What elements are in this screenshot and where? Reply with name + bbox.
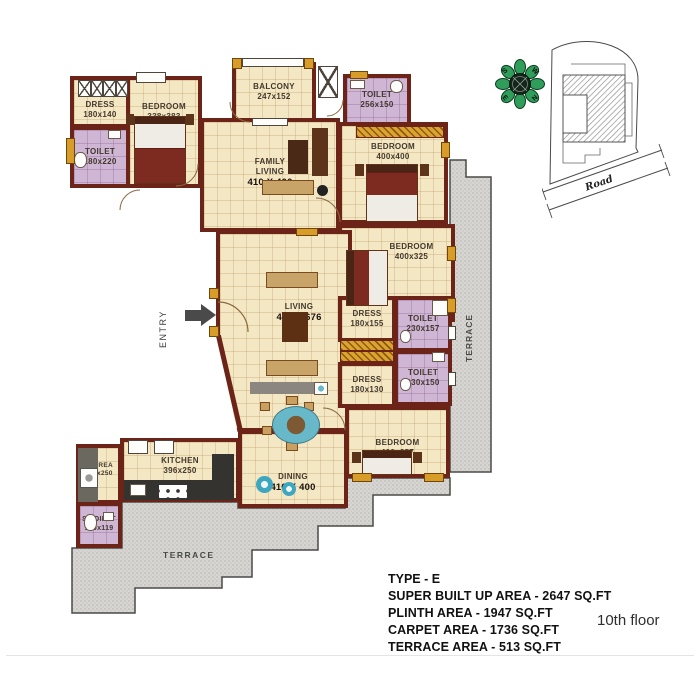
window-toilet-b-east bbox=[448, 326, 456, 340]
media-console bbox=[250, 382, 314, 394]
room-dress-c: DRESS 180x130 bbox=[338, 362, 396, 408]
site-map: Road bbox=[542, 36, 698, 236]
type-label: TYPE - E bbox=[388, 572, 611, 586]
entry-arrow-shaft bbox=[185, 310, 201, 321]
side-table bbox=[186, 114, 194, 125]
room-dims: 180x140 bbox=[83, 110, 116, 120]
sofa-living-2 bbox=[266, 360, 318, 376]
wc bbox=[390, 80, 403, 93]
window-kitchen-top-2 bbox=[154, 440, 174, 454]
sofa-living-1 bbox=[266, 272, 318, 288]
road-tick bbox=[542, 186, 546, 200]
dining-chair bbox=[260, 402, 270, 411]
wardrobe-bedroom-b bbox=[356, 126, 444, 138]
bed-bedroom-c bbox=[346, 250, 388, 306]
room-name: DRESS bbox=[83, 100, 116, 110]
room-name: DRESS bbox=[350, 375, 383, 385]
room-name: BEDROOM bbox=[142, 102, 186, 112]
window-bedroom-a-top bbox=[136, 72, 166, 83]
wardrobe-dress-2 bbox=[340, 351, 394, 362]
room-name: DINING bbox=[270, 472, 315, 482]
room-dims: 180x220 bbox=[83, 157, 116, 167]
info-line-carpet: CARPET AREA - 1736 SQ.FT bbox=[388, 623, 611, 637]
info-line-plinth: PLINTH AREA - 1947 SQ.FT bbox=[388, 606, 611, 620]
wardrobe-dress-1 bbox=[340, 340, 394, 351]
window-family-living-top bbox=[252, 118, 288, 126]
wc bbox=[400, 378, 411, 391]
threshold-entry-bottom bbox=[209, 326, 219, 337]
dining-chair bbox=[286, 396, 298, 405]
planter bbox=[317, 185, 328, 196]
bed-bedroom-b bbox=[366, 164, 418, 222]
cabinet bbox=[312, 128, 328, 176]
window-toilet-top bbox=[350, 71, 368, 79]
room-name: BEDROOM bbox=[371, 142, 415, 152]
side-table bbox=[355, 164, 364, 176]
floor-note: 10th floor bbox=[597, 612, 660, 629]
room-name: DRESS bbox=[350, 309, 383, 319]
side-table bbox=[420, 164, 429, 176]
floorplan-canvas: DRESS 180x140 TOILET 180x220 BEDROOM 338… bbox=[0, 0, 700, 681]
room-s-toilet: S.TOILET 150x119 bbox=[76, 502, 122, 548]
wc bbox=[74, 152, 87, 168]
room-name: BEDROOM bbox=[376, 438, 420, 448]
room-dims: 400x400 bbox=[371, 152, 415, 162]
dining-chair bbox=[262, 426, 272, 435]
basin bbox=[108, 130, 121, 139]
room-name: BALCONY bbox=[253, 82, 295, 92]
window-bedroom-c-east-2 bbox=[447, 298, 456, 313]
window-toilet-c-east bbox=[448, 372, 456, 386]
basin bbox=[103, 512, 114, 521]
basin bbox=[350, 80, 365, 89]
room-dims: 256x150 bbox=[360, 100, 393, 110]
terrace-bottom-label: TERRACE bbox=[163, 550, 215, 560]
window-block-a-left bbox=[66, 138, 75, 164]
room-dims: 400x325 bbox=[390, 252, 434, 262]
info-block: TYPE - E SUPER BUILT UP AREA - 2647 SQ.F… bbox=[388, 572, 611, 657]
room-dims: 180x155 bbox=[350, 319, 383, 329]
wardrobe-x-hatch bbox=[78, 80, 128, 97]
basin bbox=[432, 352, 445, 362]
fridge bbox=[212, 454, 234, 480]
room-name: TOILET bbox=[406, 368, 439, 378]
tv-unit bbox=[288, 140, 308, 174]
balcony-post-right bbox=[304, 58, 314, 69]
side-table bbox=[413, 452, 422, 463]
road-label: Road bbox=[583, 174, 614, 194]
room-dims: 230x157 bbox=[406, 324, 439, 334]
dining-table bbox=[272, 406, 320, 444]
center-rug bbox=[282, 312, 308, 342]
room-dims: 396x250 bbox=[161, 466, 199, 476]
room-name: KITCHEN bbox=[161, 456, 199, 466]
window-bedroom-d-south-2 bbox=[424, 473, 444, 482]
compass-rose: S W N E bbox=[492, 56, 548, 112]
side-table bbox=[126, 114, 134, 125]
window-bedroom-d-south-1 bbox=[352, 473, 372, 482]
washing-machine bbox=[80, 468, 98, 488]
road-tick bbox=[547, 204, 552, 218]
shower-tray bbox=[432, 300, 448, 316]
balcony-railing bbox=[242, 58, 304, 67]
wc bbox=[84, 514, 97, 531]
room-balcony: BALCONY 247x152 bbox=[232, 62, 316, 122]
room-dims: 180x130 bbox=[350, 385, 383, 395]
terrace-right-label: TERRACE bbox=[464, 302, 474, 362]
room-name: TOILET bbox=[360, 90, 393, 100]
window-bedroom-c-east-1 bbox=[447, 246, 456, 261]
decor-plate-1 bbox=[256, 476, 273, 493]
threshold-family-living bbox=[296, 228, 318, 236]
info-line-super-builtup: SUPER BUILT UP AREA - 2647 SQ.FT bbox=[388, 589, 611, 603]
decor-plate-2 bbox=[282, 482, 296, 496]
entry-label: ENTRY bbox=[158, 294, 168, 348]
info-line-terrace: TERRACE AREA - 513 SQ.FT bbox=[388, 640, 611, 654]
side-table bbox=[352, 452, 361, 463]
wash-basin bbox=[314, 382, 328, 395]
building-notch bbox=[563, 95, 587, 133]
shaft-x-hatch bbox=[318, 66, 338, 98]
stove bbox=[158, 484, 188, 499]
wc bbox=[400, 330, 411, 343]
room-dims: 230x150 bbox=[406, 378, 439, 388]
sofa-family-living bbox=[262, 180, 314, 195]
room-name: TOILET bbox=[83, 147, 116, 157]
room-name: BEDROOM bbox=[390, 242, 434, 252]
window-kitchen-top-1 bbox=[128, 440, 148, 454]
balcony-post-left bbox=[232, 58, 242, 69]
bed-bedroom-a bbox=[134, 116, 186, 184]
window-bedroom-b-east bbox=[441, 142, 450, 158]
room-dims: 247x152 bbox=[253, 92, 295, 102]
room-name: LIVING bbox=[276, 302, 321, 312]
entry-arrow-head bbox=[201, 304, 216, 326]
bed-bedroom-d bbox=[362, 450, 412, 475]
threshold-entry-top bbox=[209, 288, 219, 299]
kitchen-sink bbox=[130, 484, 146, 496]
